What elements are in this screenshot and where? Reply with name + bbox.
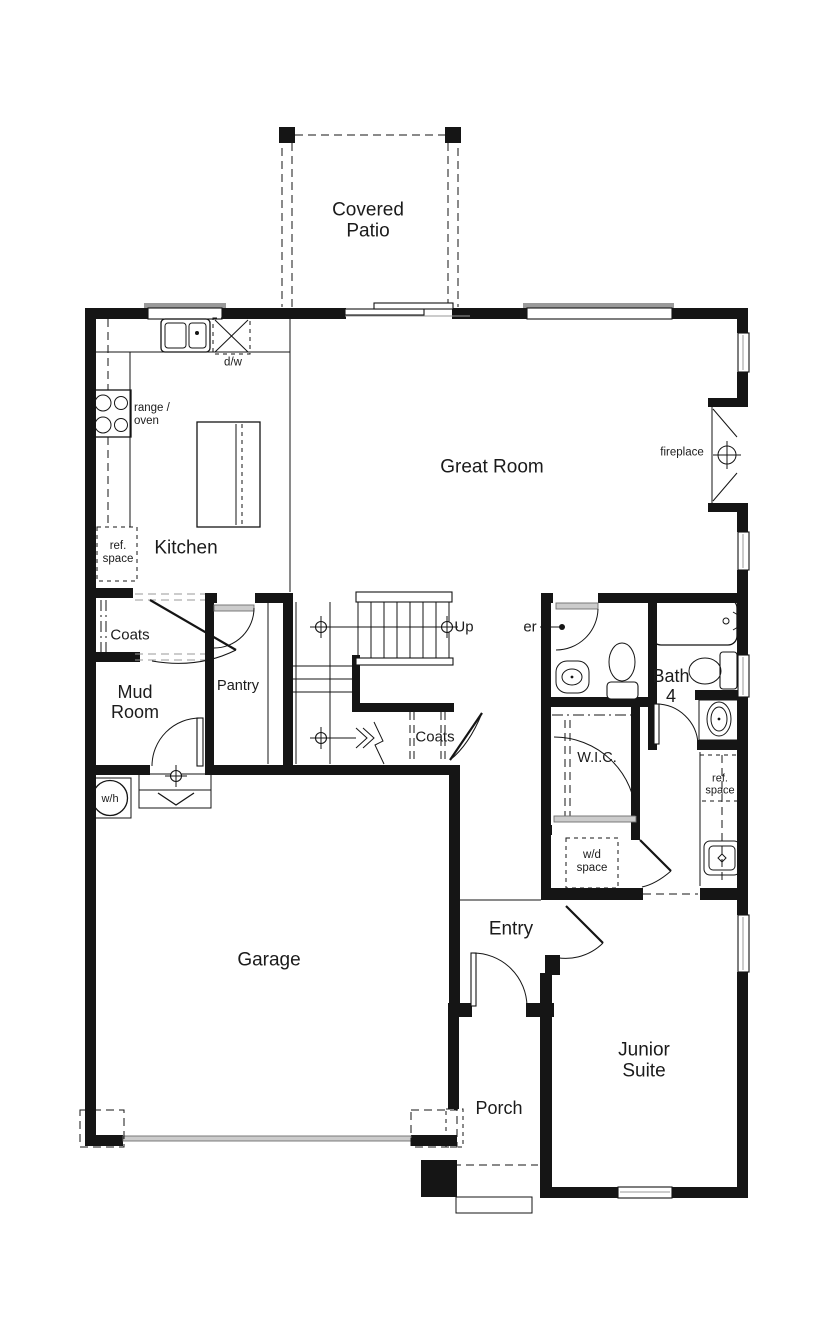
label-porch: Porch xyxy=(475,1098,522,1118)
fireplace-icon xyxy=(708,398,748,512)
powder-toilet-icon xyxy=(607,643,638,699)
kitchen-sink-icon xyxy=(161,319,210,352)
label-bath-4: Bath4 xyxy=(652,666,689,706)
label-wic: W.I.C. xyxy=(577,750,616,766)
label-pantry: Pantry xyxy=(217,678,259,694)
mud-room-door xyxy=(152,718,203,766)
floor-plan-drawing xyxy=(0,0,840,1340)
wd-door xyxy=(640,840,671,871)
front-door xyxy=(471,953,476,1006)
label-coats-stair: Coats xyxy=(415,730,454,747)
dishwasher-icon xyxy=(213,318,250,354)
bathtub-icon xyxy=(652,599,738,645)
hall-sink-icon xyxy=(704,841,740,875)
powder-door xyxy=(556,603,598,609)
entry-area xyxy=(452,900,603,1006)
powder-room xyxy=(540,603,638,699)
interior-walls xyxy=(85,588,748,1197)
bath4-toilet-icon xyxy=(689,652,737,689)
label-fireplace: fireplace xyxy=(660,447,703,460)
range-oven-icon xyxy=(92,390,131,437)
label-ref-space-hall: ref.space xyxy=(705,773,734,798)
label-mud-room: MudRoom xyxy=(111,682,159,722)
patio-slider-door xyxy=(345,309,424,315)
porch-area xyxy=(446,1109,538,1213)
label-wd-space: w/dspace xyxy=(577,849,608,875)
coats-stair-door xyxy=(450,713,482,760)
wic-closet xyxy=(552,715,640,822)
kitchen-island xyxy=(197,422,260,527)
wic-door xyxy=(554,816,636,822)
label-ref-space-kitchen: ref.space xyxy=(103,540,134,566)
pantry-door xyxy=(214,605,254,611)
label-up: Up xyxy=(454,620,473,637)
junior-suite-door xyxy=(566,906,603,943)
label-kitchen: Kitchen xyxy=(154,537,217,558)
label-junior-suite: JuniorSuite xyxy=(618,1040,670,1083)
bath4-sink-icon xyxy=(699,700,740,740)
label-range-oven: range /oven xyxy=(134,402,170,428)
label-covered-patio: CoveredPatio xyxy=(332,200,404,243)
label-great-room: Great Room xyxy=(440,456,543,477)
bath4-door xyxy=(654,704,659,744)
garage-door xyxy=(123,1136,411,1141)
label-dishwasher: d/w xyxy=(224,357,242,370)
label-garage: Garage xyxy=(237,949,300,970)
label-coats-mud: Coats xyxy=(110,628,149,645)
label-powder-partial: er xyxy=(523,620,536,637)
porch-step xyxy=(456,1197,532,1213)
floor-plan-page: CoveredPatio Great Room fireplace Kitche… xyxy=(0,0,840,1340)
label-water-heater: w/h xyxy=(101,793,118,805)
powder-sink-icon xyxy=(556,661,589,693)
label-entry: Entry xyxy=(489,918,533,939)
